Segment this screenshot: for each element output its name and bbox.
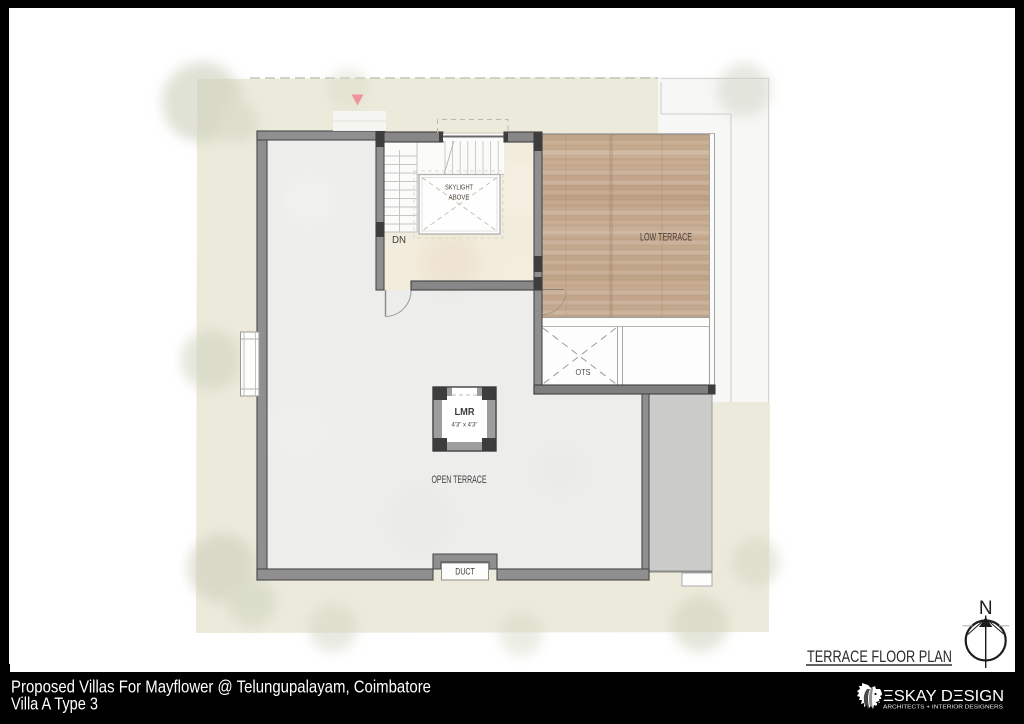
svg-text:SKYLIGHT: SKYLIGHT xyxy=(445,183,473,192)
svg-text:OPEN TERRACE: OPEN TERRACE xyxy=(432,474,487,486)
svg-text:4'3" x 4'3": 4'3" x 4'3" xyxy=(452,422,479,429)
svg-text:ΞSKAY DΞSIGN: ΞSKAY DΞSIGN xyxy=(883,688,1004,705)
svg-text:OTS: OTS xyxy=(576,367,591,377)
svg-text:LOW TERRACE: LOW TERRACE xyxy=(640,232,692,244)
svg-text:ARCHITECTS + INTERIOR DESIGN: ARCHITECTS + INTERIOR DESIGNERS xyxy=(883,705,1004,711)
svg-text:Villa A Type 3: Villa A Type 3 xyxy=(11,694,98,714)
svg-text:DUCT: DUCT xyxy=(455,567,475,578)
svg-text:DN: DN xyxy=(392,234,406,246)
svg-text:ABOVE: ABOVE xyxy=(449,193,470,202)
svg-text:LMR: LMR xyxy=(455,406,475,418)
svg-text:TERRACE FLOOR PLAN: TERRACE FLOOR PLAN xyxy=(807,647,952,666)
